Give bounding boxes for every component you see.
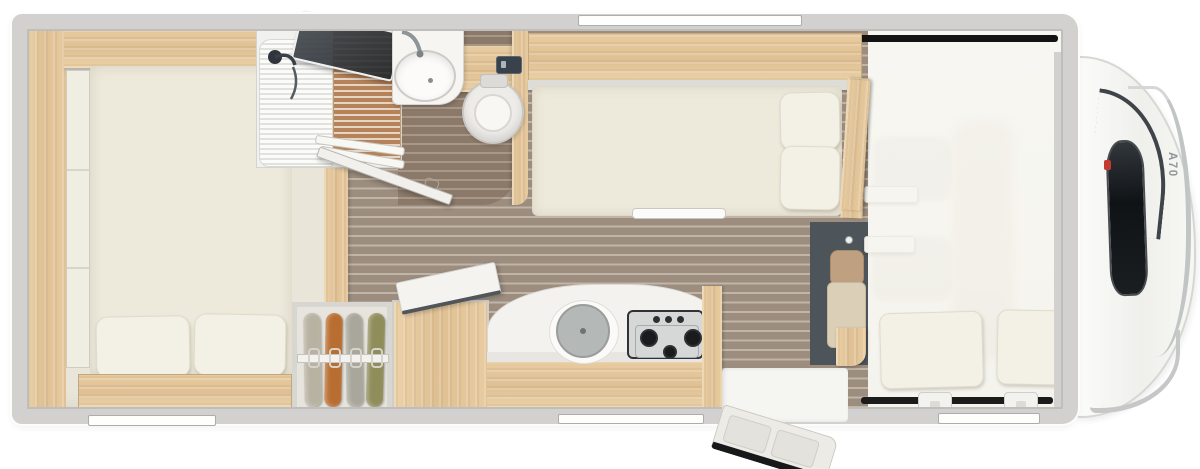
model-label: A70: [1138, 152, 1178, 192]
window-bench: [578, 15, 802, 26]
window-kitchen: [558, 414, 704, 424]
window-cab-door: [938, 413, 1040, 424]
door-panel-inset: [722, 414, 772, 454]
brand-badge: [1104, 160, 1111, 170]
window-bedroom: [88, 415, 216, 426]
vehicle-body-wall: [12, 14, 1078, 424]
door-panel-inset: [770, 429, 820, 469]
floorplan-canvas: A70: [0, 0, 1200, 469]
chrome-trim-lower: [1090, 330, 1180, 413]
